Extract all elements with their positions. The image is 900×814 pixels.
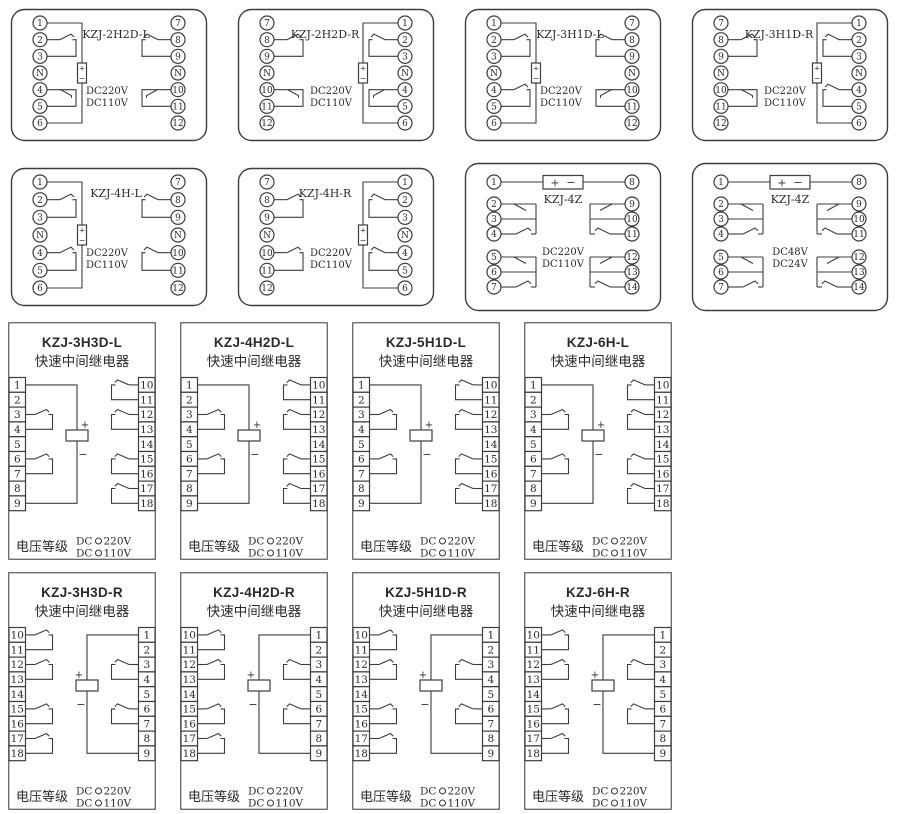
terminal-label: 7 (264, 178, 270, 188)
panel-subtitle: 快速中间继电器 (551, 354, 646, 370)
terminal-label: 10 (355, 630, 368, 642)
terminal-label: 8 (186, 483, 193, 495)
terminal-label: 1 (402, 19, 408, 29)
contact-blade (287, 410, 301, 415)
voltage-class-label: 电压等级 (360, 789, 412, 805)
relay-diagram-sheet: +−123N456789N101112KZJ-2H2D-LDC220VDC110… (0, 0, 900, 814)
voltage-option-circle-icon (440, 788, 446, 794)
voltage-label: DC110V (542, 259, 585, 270)
terminal-label: 6 (402, 284, 408, 294)
contact-blade (35, 410, 49, 415)
panel-subtitle: 快速中间继电器 (379, 354, 474, 370)
contact-symbol (728, 90, 757, 107)
contact-symbol (198, 635, 225, 650)
panel-subtitle: 快速中间继电器 (35, 354, 130, 370)
terminal-label: 9 (659, 748, 666, 760)
voltage-option-prefix: DC (420, 548, 436, 560)
terminal-label: 9 (629, 200, 635, 210)
terminal-label: 1 (718, 178, 724, 188)
coil-plus-label: + (550, 177, 559, 190)
terminal-label: 5 (143, 689, 150, 701)
terminal-label: 8 (315, 733, 322, 745)
coil-plus-label: + (79, 226, 85, 235)
contact-symbol (284, 665, 311, 680)
terminal-label: 17 (183, 733, 196, 745)
coil-bus-wire (87, 635, 139, 753)
contact-symbol (47, 253, 76, 271)
terminal-label: 7 (14, 468, 21, 480)
terminal-label: 8 (264, 36, 270, 46)
coil-plus-label: + (591, 670, 599, 681)
terminal-label: 9 (487, 748, 494, 760)
terminal-label: 1 (37, 178, 43, 188)
voltage-option-value: 110V (104, 548, 132, 560)
contact-blade (514, 204, 526, 211)
terminal-label: 1 (402, 178, 408, 188)
coil-minus-label: − (422, 448, 431, 461)
contact-symbol (142, 253, 171, 271)
terminal-label: 1 (530, 380, 537, 392)
terminal-label: 8 (629, 36, 635, 46)
terminal-label: 13 (656, 424, 669, 436)
voltage-option-prefix: DC (248, 798, 264, 810)
contact-blade (825, 34, 839, 40)
coil-minus-label: − (360, 74, 367, 83)
terminal-label: 8 (358, 483, 365, 495)
voltage-option-value: 110V (620, 798, 648, 810)
terminal-label: 4 (402, 249, 408, 259)
terminal-label: 5 (37, 103, 43, 113)
voltage-option-value: 220V (276, 536, 304, 548)
terminal-label: 5 (487, 689, 494, 701)
contact-blade (287, 660, 301, 665)
terminal-label: 7 (659, 718, 666, 730)
terminal-label: 8 (143, 733, 150, 745)
coil-minus-label: − (79, 236, 86, 245)
terminal-label: 13 (140, 424, 153, 436)
panel-title: KZJ-4H2D-L (214, 335, 294, 350)
contact-symbol (628, 415, 655, 430)
terminal-label: 13 (11, 674, 24, 686)
panel-title: KZJ-4Z (544, 193, 583, 206)
terminal-label: 6 (530, 454, 537, 466)
coil-bus-wire (198, 385, 250, 503)
contact-blade (743, 228, 758, 234)
terminal-label: 2 (659, 644, 666, 656)
terminal-label: 3 (530, 409, 537, 421)
voltage-option-circle-icon (440, 550, 446, 556)
terminal-label: N (401, 231, 409, 241)
contact-blade (207, 410, 221, 415)
contact-symbol (274, 253, 303, 271)
terminal-label: 13 (853, 268, 865, 278)
terminal-label: 11 (853, 230, 864, 240)
contact-blade (207, 454, 221, 459)
coil-symbol (582, 430, 604, 441)
contact-blade (825, 84, 839, 90)
terminal-label: 11 (312, 394, 325, 406)
terminal-label: 6 (37, 119, 43, 129)
contact-blade (551, 630, 565, 635)
terminal-label: 6 (37, 284, 43, 294)
terminal-label: 2 (186, 394, 193, 406)
terminal-label: 10 (626, 86, 638, 96)
terminal-label: 10 (140, 380, 153, 392)
contact-blade (60, 34, 74, 40)
terminal-label: 6 (14, 454, 21, 466)
terminal-label: N (263, 231, 271, 241)
panel-title: KZJ-5H1D-R (385, 585, 467, 600)
contact-symbol (47, 90, 76, 107)
contact-blade (287, 484, 301, 489)
voltage-option-value: 220V (276, 786, 304, 798)
voltage-option-circle-icon (268, 788, 274, 794)
terminal-label: 10 (172, 249, 184, 259)
contact-symbol (26, 709, 53, 724)
contact-symbol (274, 40, 303, 57)
coil-plus-label: + (814, 64, 820, 73)
coil-symbol (66, 430, 88, 441)
contact-blade (516, 281, 531, 287)
terminal-label: 10 (172, 86, 184, 96)
terminal-label: 5 (491, 253, 497, 263)
contact-symbol (456, 459, 483, 474)
contact-symbol (284, 415, 311, 430)
contact-symbol (628, 459, 655, 474)
terminal-label: 5 (37, 267, 43, 277)
terminal-label: 18 (527, 748, 540, 760)
contact-blade (115, 380, 129, 385)
panel-KZJ-3H1D-L-02: +−123N456789N101112KZJ-3H1D-LDC220VDC110… (464, 8, 662, 142)
terminal-label: 11 (656, 394, 669, 406)
terminal-label: 14 (527, 689, 541, 701)
terminal-label: 4 (37, 86, 43, 96)
terminal-label: 2 (530, 394, 537, 406)
contact-symbol (823, 90, 852, 107)
terminal-label: N (628, 69, 636, 79)
terminal-label: 2 (14, 394, 21, 406)
voltage-option-value: 110V (448, 798, 476, 810)
contact-symbol (542, 635, 569, 650)
contact-blade (551, 704, 565, 709)
terminal-label: 1 (856, 19, 862, 29)
terminal-label: 4 (14, 424, 21, 436)
contact-blade (459, 660, 473, 665)
coil-minus-label: − (814, 74, 821, 83)
contact-symbol (369, 40, 398, 57)
voltage-option-value: 220V (620, 786, 648, 798)
terminal-label: 4 (186, 424, 193, 436)
voltage-label: DC220V (764, 86, 807, 97)
contact-blade (822, 281, 837, 287)
terminal-label: 14 (11, 689, 25, 701)
terminal-label: 11 (261, 103, 272, 113)
voltage-label: DC110V (86, 260, 129, 271)
contact-blade (207, 734, 221, 739)
voltage-option-circle-icon (612, 788, 618, 794)
terminal-label: 2 (491, 200, 497, 210)
contact-symbol (142, 40, 171, 57)
coil-plus-label: + (597, 420, 605, 431)
terminal-label: 5 (530, 439, 537, 451)
terminal-label: 7 (315, 718, 322, 730)
coil-symbol (770, 176, 810, 190)
voltage-option-prefix: DC (592, 548, 608, 560)
voltage-option-prefix: DC (420, 786, 436, 798)
terminal-label: 2 (37, 36, 43, 46)
contact-blade (60, 194, 74, 200)
terminal-label: 3 (14, 409, 21, 421)
terminal-label: 7 (718, 283, 724, 293)
terminal-label: 12 (355, 659, 368, 671)
contact-symbol (628, 665, 655, 680)
terminal-label: 4 (856, 86, 862, 96)
terminal-label: 10 (715, 86, 727, 96)
terminal-label: 16 (527, 718, 541, 730)
contact-symbol (112, 385, 139, 400)
terminal-label: 13 (312, 424, 325, 436)
contact-blade (287, 454, 301, 459)
contact-symbol (628, 709, 655, 724)
terminal-label: 17 (484, 483, 497, 495)
terminal-label: 2 (143, 644, 150, 656)
voltage-label: DC220V (310, 86, 353, 97)
coil-plus-label: + (81, 420, 89, 431)
voltage-class-label: 电压等级 (532, 539, 584, 555)
contact-symbol (456, 415, 483, 430)
terminal-label: 14 (853, 283, 865, 293)
terminal-label: 17 (656, 483, 669, 495)
contact-blade (374, 90, 385, 98)
coil-minus-label: − (79, 74, 86, 83)
terminal-label: 8 (530, 483, 537, 495)
coil-plus-label: + (360, 226, 366, 235)
terminal-label: 1 (315, 630, 322, 642)
coil-symbol (76, 680, 98, 691)
panel-title: KZJ-5H1D-L (386, 335, 466, 350)
terminal-label: 14 (484, 439, 498, 451)
panel-KZJ-3H3D-L-20: KZJ-3H3D-L快速中间继电器11021131241351461571681… (8, 322, 156, 560)
terminal-label: 4 (315, 674, 322, 686)
terminal-label: 4 (402, 86, 408, 96)
coil-minus-label: − (76, 698, 85, 711)
voltage-option-circle-icon (268, 550, 274, 556)
terminal-label: 12 (140, 409, 153, 421)
coil-plus-label: + (75, 670, 83, 681)
terminal-label: N (490, 69, 498, 79)
terminal-label: 1 (358, 380, 365, 392)
coil-plus-label: + (533, 64, 539, 73)
contact-symbol (198, 665, 225, 680)
contact-symbol (47, 200, 76, 218)
terminal-label: 9 (358, 498, 365, 510)
terminal-label: 9 (264, 214, 270, 224)
contact-symbol (501, 40, 530, 57)
terminal-label: 11 (11, 644, 24, 656)
terminal-label: 14 (140, 439, 154, 451)
panel-KZJ-5H1D-L-22: KZJ-5H1D-L快速中间继电器11021131241351461571681… (352, 322, 500, 560)
terminal-label: N (174, 69, 182, 79)
contact-blade (514, 84, 528, 90)
contact-symbol (284, 459, 311, 474)
contact-blade (35, 734, 49, 739)
terminal-label: 7 (358, 468, 365, 480)
panel-KZJ-4H2D-L-21: KZJ-4H2D-L快速中间继电器11021131241351461571681… (180, 322, 328, 560)
terminal-label: 12 (172, 119, 183, 129)
coil-symbol (592, 680, 614, 691)
terminal-label: 5 (358, 439, 365, 451)
terminal-label: 1 (143, 630, 150, 642)
voltage-option-value: 220V (104, 786, 132, 798)
terminal-label: N (717, 69, 725, 79)
terminal-label: N (401, 69, 409, 79)
coil-minus-label: − (793, 176, 802, 189)
contact-blade (371, 247, 385, 253)
terminal-label: 1 (659, 630, 666, 642)
contact-symbol (112, 459, 139, 474)
terminal-label: 13 (355, 674, 368, 686)
terminal-label: 5 (14, 439, 21, 451)
contact-blade (115, 660, 129, 665)
contact-symbol (26, 739, 53, 754)
terminal-label: 10 (656, 380, 669, 392)
contact-symbol (198, 459, 225, 474)
terminal-label: 8 (718, 36, 724, 46)
contact-symbol (26, 635, 53, 650)
contact-symbol (284, 385, 311, 400)
contact-blade (288, 90, 299, 98)
panel-KZJ-2H2D-R-01: +−789N101112123N456KZJ-2H2D-RDC220VDC110… (237, 8, 435, 142)
terminal-label: 4 (491, 230, 497, 240)
terminal-label: N (855, 69, 863, 79)
terminal-label: 11 (715, 103, 726, 113)
coil-bus-wire (26, 385, 78, 503)
terminal-label: 7 (264, 19, 270, 29)
coil-minus-label: − (594, 448, 603, 461)
terminal-label: 9 (530, 498, 537, 510)
contact-symbol (370, 665, 397, 680)
terminal-label: 3 (491, 215, 497, 225)
voltage-option-value: 110V (104, 798, 132, 810)
terminal-label: 2 (402, 36, 408, 46)
terminal-label: 4 (718, 230, 724, 240)
contact-blade (631, 380, 645, 385)
contact-blade (631, 410, 645, 415)
voltage-option-prefix: DC (248, 786, 264, 798)
voltage-option-prefix: DC (76, 786, 92, 798)
terminal-label: 15 (656, 454, 669, 466)
contact-symbol (26, 665, 53, 680)
contact-symbol (628, 385, 655, 400)
coil-bus-wire (603, 635, 655, 753)
terminal-label: 3 (402, 53, 408, 63)
contact-blade (551, 734, 565, 739)
contact-symbol (728, 40, 757, 57)
contact-blade (459, 484, 473, 489)
terminal-label: 5 (718, 253, 724, 263)
terminal-label: 5 (315, 689, 322, 701)
terminal-label: 10 (11, 630, 24, 642)
contact-symbol (369, 253, 398, 271)
terminal-label: 12 (853, 253, 864, 263)
terminal-label: 8 (659, 733, 666, 745)
voltage-class-label: 电压等级 (188, 789, 240, 805)
terminal-label: 15 (527, 704, 540, 716)
voltage-label: DC110V (86, 98, 129, 109)
terminal-label: 13 (484, 424, 497, 436)
panel-title: KZJ-3H3D-L (42, 335, 122, 350)
contact-symbol (823, 40, 852, 57)
panel-subtitle: 快速中间继电器 (35, 604, 130, 620)
terminal-label: 4 (659, 674, 666, 686)
contact-symbol (198, 415, 225, 430)
contact-blade (822, 228, 837, 234)
contact-blade (371, 34, 385, 40)
voltage-option-value: 110V (276, 798, 304, 810)
terminal-label: 12 (656, 409, 669, 421)
contact-blade (35, 660, 49, 665)
contact-symbol (198, 739, 225, 754)
terminal-label: 11 (355, 644, 368, 656)
voltage-option-value: 110V (276, 548, 304, 560)
contact-blade (287, 247, 301, 253)
terminal-label: 17 (355, 733, 368, 745)
contact-blade (459, 410, 473, 415)
voltage-option-circle-icon (612, 800, 618, 806)
voltage-label: DC24V (772, 259, 808, 270)
voltage-option-prefix: DC (592, 798, 608, 810)
terminal-label: 3 (143, 659, 150, 671)
terminal-label: 6 (718, 268, 724, 278)
terminal-label: 4 (491, 86, 497, 96)
terminal-label: 6 (856, 119, 862, 129)
terminal-label: 15 (11, 704, 24, 716)
terminal-label: 4 (487, 674, 494, 686)
terminal-label: 3 (402, 214, 408, 224)
contact-blade (61, 90, 72, 98)
panel-KZJ-5H1D-R-32: KZJ-5H1D-R快速中间继电器10111212313414515616717… (352, 572, 500, 810)
terminal-label: 8 (629, 178, 635, 188)
contact-blade (631, 704, 645, 709)
terminal-label: 9 (264, 53, 270, 63)
terminal-label: 13 (183, 674, 196, 686)
terminal-label: 18 (183, 748, 196, 760)
coil-symbol (248, 680, 270, 691)
terminal-label: 12 (484, 409, 497, 421)
terminal-label: 2 (487, 644, 494, 656)
contact-blade (600, 204, 612, 211)
panel-KZJ-6H-L-23: KZJ-6H-L快速中间继电器1102113124135146157168179… (524, 322, 672, 560)
terminal-label: 14 (656, 439, 670, 451)
terminal-label: 9 (143, 748, 150, 760)
contact-blade (827, 204, 839, 211)
coil-plus-label: + (79, 64, 85, 73)
terminal-label: 9 (629, 53, 635, 63)
contact-symbol (274, 90, 303, 107)
voltage-option-circle-icon (96, 538, 102, 544)
terminal-label: 6 (659, 704, 666, 716)
terminal-label: 11 (261, 267, 272, 277)
contact-symbol (542, 459, 569, 474)
contact-blade (741, 257, 753, 264)
terminal-label: 2 (402, 196, 408, 206)
voltage-option-value: 110V (448, 548, 476, 560)
terminal-label: 11 (626, 103, 637, 113)
terminal-label: 6 (315, 704, 322, 716)
voltage-option-value: 220V (104, 536, 132, 548)
contact-symbol (274, 200, 303, 218)
coil-symbol (238, 430, 260, 441)
